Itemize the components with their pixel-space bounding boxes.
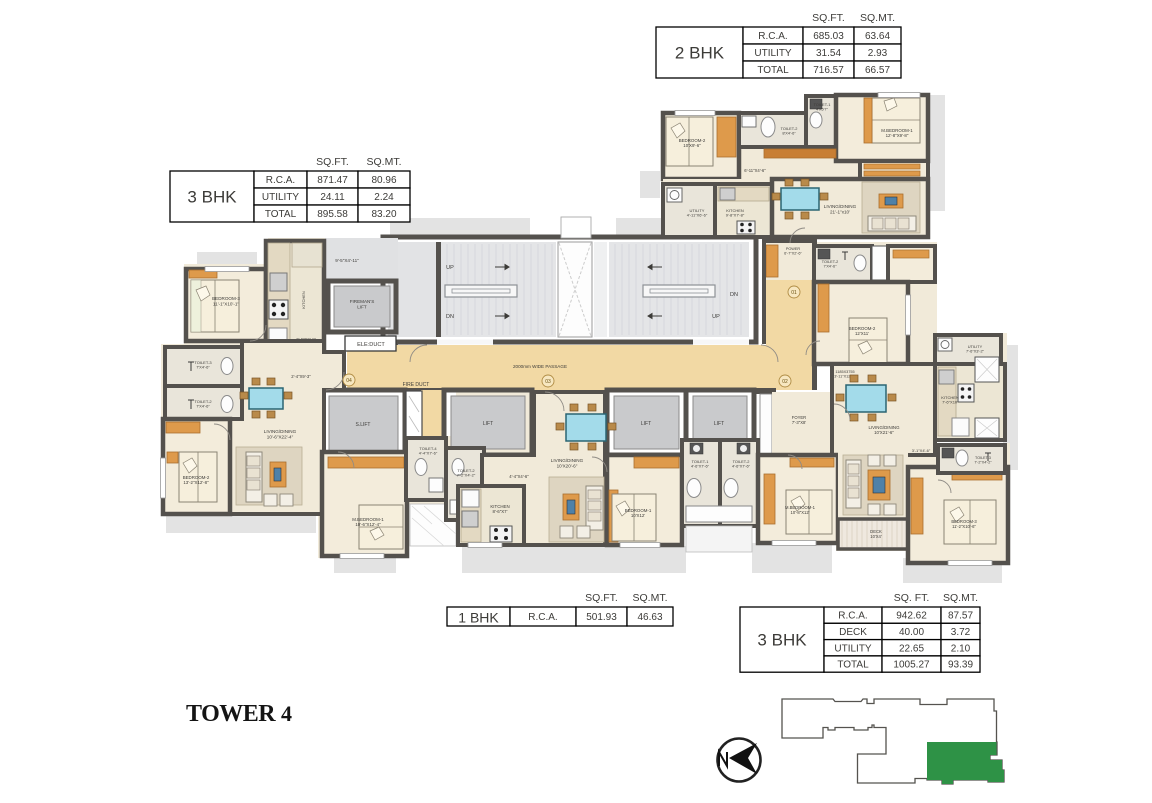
svg-text:93.39: 93.39 — [948, 660, 973, 671]
svg-text:KITCHEN: KITCHEN — [301, 291, 306, 309]
svg-text:3'-1"X4'-6": 3'-1"X4'-6" — [912, 448, 931, 453]
svg-text:2.24: 2.24 — [374, 192, 394, 203]
svg-text:LIFT: LIFT — [483, 421, 493, 427]
svg-text:12'-8"X9'-8": 12'-8"X9'-8" — [886, 133, 909, 138]
svg-text:40.00: 40.00 — [899, 627, 924, 638]
svg-text:3 BHK: 3 BHK — [757, 631, 807, 650]
svg-text:4'-4"X7'-6": 4'-4"X7'-6" — [419, 451, 438, 456]
svg-text:2'-4"X9'-3": 2'-4"X9'-3" — [291, 374, 311, 379]
svg-text:R.C.A.: R.C.A. — [528, 612, 557, 623]
svg-text:63.64: 63.64 — [865, 31, 890, 42]
svg-text:21'-1"x10': 21'-1"x10' — [830, 209, 850, 214]
svg-text:10'X20'-6": 10'X20'-6" — [557, 463, 578, 468]
svg-text:7'X4'-6": 7'X4'-6" — [824, 264, 838, 268]
svg-text:10'-6"X22'-4": 10'-6"X22'-4" — [267, 434, 294, 439]
svg-text:10'-8"X12': 10'-8"X12' — [791, 510, 810, 515]
svg-text:POWER: POWER — [786, 247, 801, 251]
svg-text:10'X9'-6": 10'X9'-6" — [683, 143, 701, 148]
svg-text:LIVING/DINING: LIVING/DINING — [824, 204, 857, 209]
svg-text:DECK: DECK — [839, 627, 867, 638]
svg-text:46.63: 46.63 — [637, 612, 662, 623]
svg-text:4'-11"X6'-6": 4'-11"X6'-6" — [687, 213, 708, 218]
svg-text:S.LIFT: S.LIFT — [355, 422, 370, 428]
svg-text:8'X4'-6": 8'X4'-6" — [782, 131, 796, 136]
svg-text:4: 4 — [281, 701, 292, 726]
svg-text:LIFT: LIFT — [357, 305, 367, 310]
svg-text:01: 01 — [791, 290, 797, 296]
svg-text:716.57: 716.57 — [813, 65, 844, 76]
svg-text:R.C.A.: R.C.A. — [838, 611, 867, 622]
svg-text:942.62: 942.62 — [896, 611, 927, 622]
svg-text:87.57: 87.57 — [948, 611, 973, 622]
svg-text:4'-6"X7'-6": 4'-6"X7'-6" — [691, 464, 710, 469]
svg-text:7'X4'-6": 7'X4'-6" — [196, 365, 210, 370]
svg-text:2.93: 2.93 — [868, 48, 888, 59]
svg-text:1185X3755: 1185X3755 — [835, 370, 854, 374]
svg-text:FIREMAN'S: FIREMAN'S — [350, 299, 375, 304]
svg-text:7'-3"X8': 7'-3"X8' — [792, 420, 806, 425]
svg-text:4'X5'7": 4'X5'7" — [816, 107, 829, 112]
svg-text:LIVING/DINING: LIVING/DINING — [264, 429, 297, 434]
svg-text:11'-2"X10'-6": 11'-2"X10'-6" — [952, 524, 976, 529]
svg-text:3 BHK: 3 BHK — [187, 188, 237, 207]
svg-text:LIVING/DINING: LIVING/DINING — [551, 458, 584, 463]
svg-text:LIFT: LIFT — [641, 421, 651, 427]
svg-text:11'-1"X10'-1": 11'-1"X10'-1" — [213, 301, 239, 306]
svg-text:3.72: 3.72 — [951, 627, 971, 638]
svg-text:7'-2"X4'-2": 7'-2"X4'-2" — [974, 460, 992, 464]
svg-text:80.96: 80.96 — [371, 175, 396, 186]
svg-text:6'-7"X2'-6": 6'-7"X2'-6" — [784, 251, 802, 255]
svg-text:685.03: 685.03 — [813, 31, 844, 42]
svg-text:2 BHK: 2 BHK — [675, 44, 725, 63]
svg-text:12'X11': 12'X11' — [855, 331, 869, 336]
svg-text:TOILET-2: TOILET-2 — [822, 260, 838, 264]
svg-text:DN: DN — [730, 292, 738, 298]
svg-text:SQ.MT.: SQ.MT. — [860, 12, 895, 24]
svg-text:SQ.FT.: SQ.FT. — [316, 156, 349, 168]
svg-text:SQ.MT.: SQ.MT. — [943, 592, 978, 604]
svg-text:DN: DN — [446, 314, 454, 320]
svg-text:24.11: 24.11 — [320, 192, 345, 203]
svg-text:8'-6"X7': 8'-6"X7' — [493, 509, 508, 514]
svg-text:UP: UP — [446, 265, 454, 271]
svg-text:10'X21'-6": 10'X21'-6" — [874, 430, 894, 435]
svg-text:31.54: 31.54 — [816, 48, 841, 59]
svg-text:4'-6"X7'-6": 4'-6"X7'-6" — [732, 464, 751, 469]
svg-text:UTILITY: UTILITY — [754, 48, 792, 59]
svg-text:ELE:DUCT: ELE:DUCT — [357, 342, 385, 348]
svg-text:6'-11"X4'-6": 6'-11"X4'-6" — [744, 168, 766, 173]
svg-text:22.65: 22.65 — [899, 643, 924, 654]
svg-text:7'-6"X10': 7'-6"X10' — [942, 400, 958, 405]
svg-text:SQ.MT.: SQ.MT. — [632, 592, 667, 604]
svg-text:R.C.A.: R.C.A. — [266, 175, 295, 186]
svg-text:7'-2"X4'-2": 7'-2"X4'-2" — [457, 473, 476, 478]
svg-text:LIFT: LIFT — [714, 421, 724, 427]
svg-text:02: 02 — [782, 379, 788, 385]
svg-text:10'X4': 10'X4' — [870, 534, 882, 539]
svg-text:2000mm WIDE PASSAGE: 2000mm WIDE PASSAGE — [513, 364, 567, 369]
svg-text:4'-4"X4'-6": 4'-4"X4'-6" — [509, 474, 529, 479]
svg-text:04: 04 — [346, 378, 352, 384]
svg-text:2.10: 2.10 — [951, 643, 971, 654]
svg-text:FIRE DUCT: FIRE DUCT — [403, 382, 430, 388]
svg-text:7'-6"X3'-2": 7'-6"X3'-2" — [966, 349, 985, 354]
svg-text:TOWER: TOWER — [186, 701, 276, 727]
svg-text:501.93: 501.93 — [586, 612, 617, 623]
svg-text:66.57: 66.57 — [865, 65, 890, 76]
svg-text:R.C.A.: R.C.A. — [758, 31, 787, 42]
svg-text:9'-5"X4'-11": 9'-5"X4'-11" — [335, 258, 359, 263]
svg-text:UP: UP — [712, 314, 720, 320]
svg-text:UTILITY: UTILITY — [262, 192, 300, 203]
svg-text:TOTAL: TOTAL — [757, 65, 789, 76]
svg-text:1005.27: 1005.27 — [893, 660, 930, 671]
svg-text:SQ.FT.: SQ.FT. — [812, 12, 845, 24]
svg-text:895.58: 895.58 — [317, 209, 348, 220]
svg-text:SQ.MT.: SQ.MT. — [366, 156, 401, 168]
svg-text:10'-6"X12'-4": 10'-6"X12'-4" — [355, 522, 381, 527]
svg-text:1 BHK: 1 BHK — [458, 610, 499, 626]
svg-text:TOTAL: TOTAL — [265, 209, 297, 220]
svg-text:9'-8"X7'-8": 9'-8"X7'-8" — [726, 213, 745, 218]
svg-text:871.47: 871.47 — [317, 175, 348, 186]
svg-text:SQ.FT.: SQ.FT. — [585, 592, 618, 604]
svg-text:13'-2"X12'-8": 13'-2"X12'-8" — [183, 480, 209, 485]
svg-text:7'X4'-6": 7'X4'-6" — [196, 404, 210, 409]
svg-text:SQ. FT.: SQ. FT. — [894, 592, 930, 604]
svg-text:83.20: 83.20 — [371, 209, 396, 220]
svg-text:UTILITY: UTILITY — [834, 643, 872, 654]
svg-text:TOTAL: TOTAL — [837, 660, 869, 671]
svg-text:10'X12': 10'X12' — [631, 513, 646, 518]
svg-text:BEDROOM-3: BEDROOM-3 — [212, 296, 240, 301]
svg-text:03: 03 — [545, 379, 551, 385]
